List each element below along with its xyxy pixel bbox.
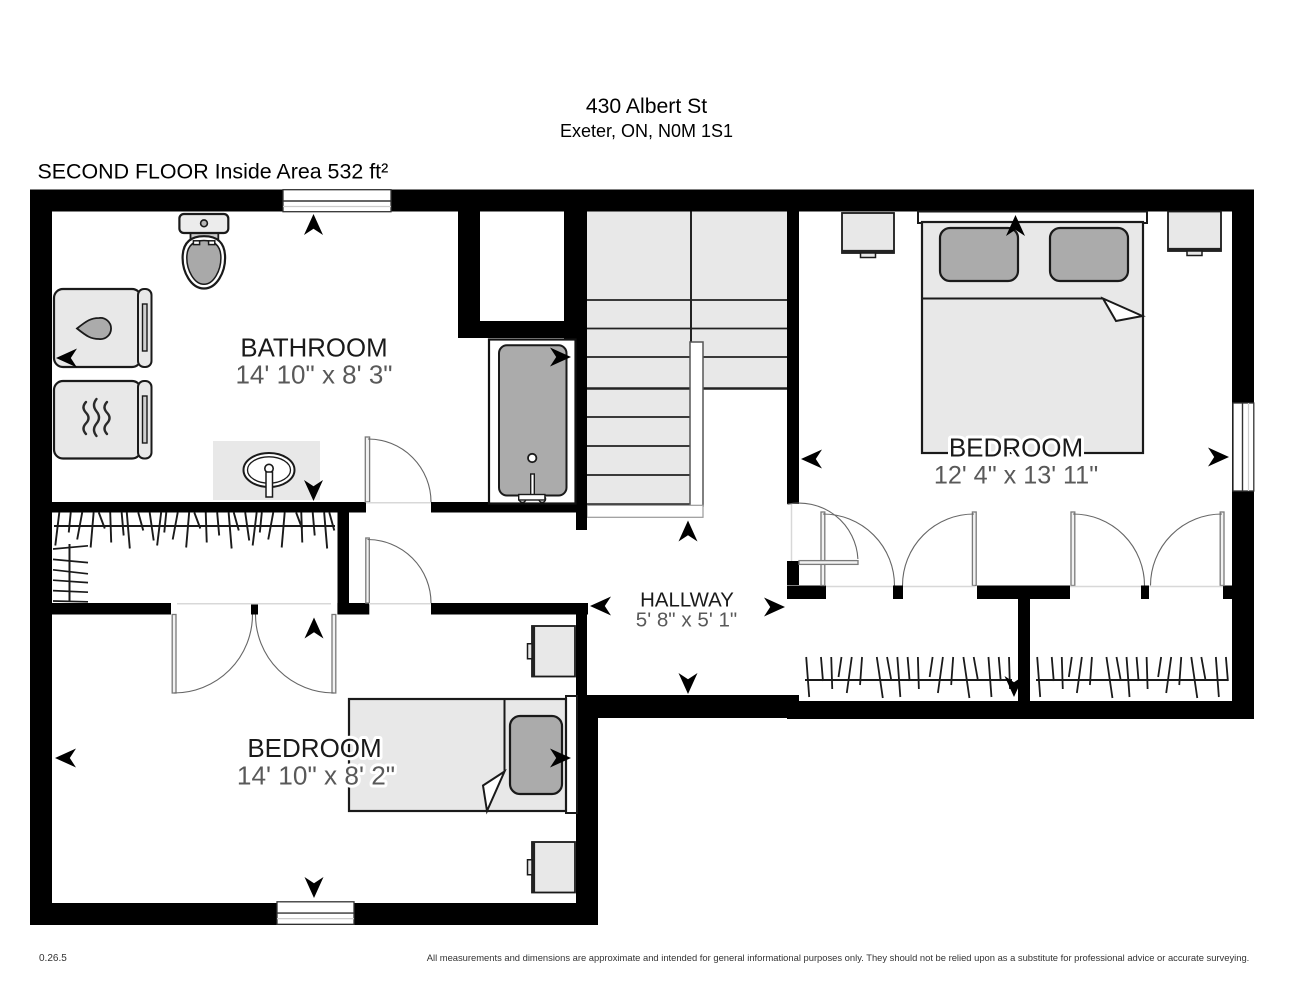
svg-text:SECOND FLOOR Inside Area 532 f: SECOND FLOOR Inside Area 532 ft² <box>38 160 389 184</box>
svg-text:All measurements and dimension: All measurements and dimensions are appr… <box>427 952 1250 963</box>
svg-text:BEDROOM: BEDROOM <box>247 733 381 763</box>
svg-text:14' 10" x 8' 3": 14' 10" x 8' 3" <box>235 360 392 390</box>
svg-text:430 Albert St: 430 Albert St <box>586 95 707 118</box>
svg-text:BATHROOM: BATHROOM <box>240 335 387 363</box>
svg-text:Exeter, ON, N0M 1S1: Exeter, ON, N0M 1S1 <box>560 121 733 141</box>
svg-text:0.26.5: 0.26.5 <box>39 953 67 964</box>
svg-text:BEDROOM: BEDROOM <box>949 433 1083 463</box>
svg-text:5' 8" x 5' 1": 5' 8" x 5' 1" <box>636 608 737 631</box>
svg-text:14' 10" x 8' 2": 14' 10" x 8' 2" <box>237 761 395 791</box>
svg-text:12' 4" x 13' 11": 12' 4" x 13' 11" <box>934 462 1098 490</box>
